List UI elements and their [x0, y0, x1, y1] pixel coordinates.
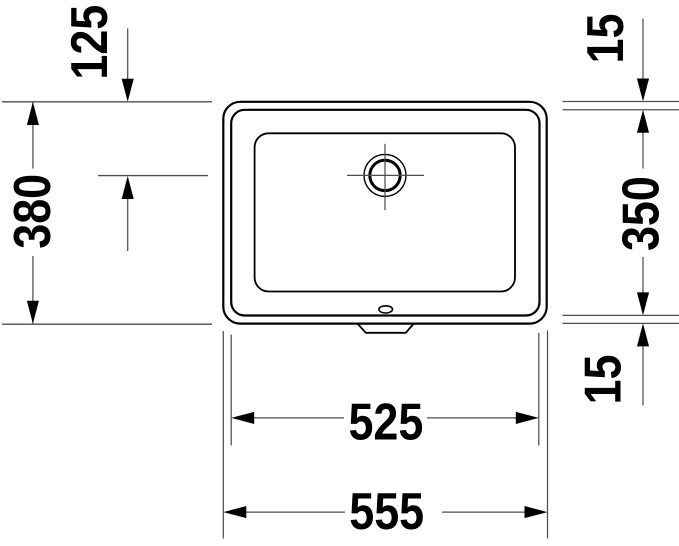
svg-text:380: 380 [4, 174, 62, 249]
svg-text:15: 15 [575, 355, 633, 405]
svg-text:555: 555 [349, 483, 424, 541]
svg-text:125: 125 [61, 5, 119, 80]
svg-text:350: 350 [613, 176, 671, 251]
svg-text:525: 525 [348, 393, 423, 451]
svg-text:15: 15 [577, 14, 635, 64]
